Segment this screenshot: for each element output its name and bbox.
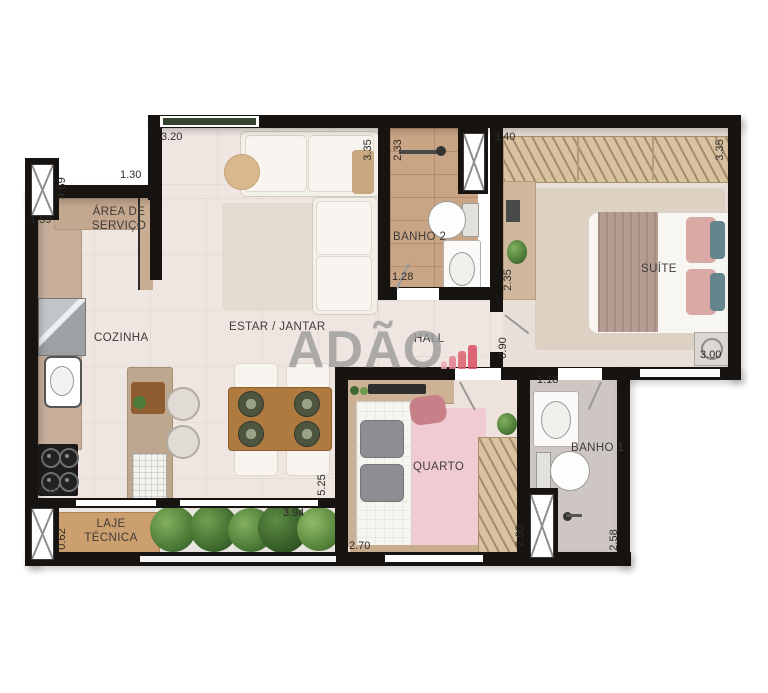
logo-bar bbox=[441, 361, 447, 369]
basin-banho1 bbox=[541, 401, 571, 439]
quarto-pillow bbox=[360, 464, 404, 502]
place-setting bbox=[238, 391, 264, 417]
dim-suite-bottom: 3.00 bbox=[700, 349, 721, 361]
dim-banho1-right-v: 2.58 bbox=[607, 520, 621, 560]
dim-suite-left-v: 2.35 bbox=[501, 260, 515, 300]
suite-window bbox=[640, 369, 720, 377]
estar-rug bbox=[222, 203, 314, 310]
room-label-estar-jantar: ESTAR / JANTAR bbox=[229, 320, 326, 334]
shower-head-banho2 bbox=[436, 146, 446, 156]
island-plant bbox=[133, 396, 146, 409]
room-label-quarto: QUARTO bbox=[413, 460, 464, 474]
toilet-banho1 bbox=[550, 451, 590, 491]
logo-bar bbox=[468, 345, 477, 369]
quarto-pillow bbox=[360, 420, 404, 458]
burner bbox=[59, 448, 79, 468]
duct-shaft-icon bbox=[31, 508, 54, 560]
dim-cozinha-bottom: 4.19 bbox=[38, 485, 59, 497]
quarto-rug bbox=[400, 408, 486, 548]
dim-estar-right-v: 3.35 bbox=[361, 130, 375, 170]
room-label-banho1: BANHO 1 bbox=[571, 441, 624, 455]
logo-bar bbox=[458, 351, 466, 369]
dim-suite-top: 3.40 bbox=[494, 131, 515, 143]
logo-bar bbox=[449, 356, 456, 369]
dim-quarto-bottom: 2.70 bbox=[349, 540, 370, 552]
quarto-plant bbox=[497, 413, 517, 435]
room-label-cozinha: COZINHA bbox=[94, 331, 149, 345]
side-table bbox=[224, 154, 260, 190]
dim-suite-right-v: 3.35 bbox=[713, 130, 727, 170]
burner bbox=[41, 448, 61, 468]
place-setting bbox=[294, 421, 320, 447]
toilet-tank-banho1 bbox=[536, 452, 551, 492]
room-label-area-servico: ÁREA DE SERVIÇO bbox=[86, 205, 152, 234]
suite-tv bbox=[506, 200, 520, 222]
dim-hall-v: 0.90 bbox=[496, 328, 510, 368]
sofa-cushion bbox=[316, 201, 372, 255]
dim-jantar-right-v: 5.25 bbox=[315, 465, 329, 505]
closet-divider bbox=[652, 137, 654, 180]
suite-pillow-teal bbox=[710, 221, 725, 259]
room-label-suite: SUÍTE bbox=[641, 262, 677, 276]
shower-arm-banho1 bbox=[566, 514, 582, 517]
place-setting bbox=[294, 391, 320, 417]
bar-chart-logo-icon bbox=[441, 344, 477, 369]
wall-right bbox=[728, 115, 741, 380]
window-planter-top bbox=[163, 118, 256, 125]
floor-plan: ÁREA DE SERVIÇO COZINHA ESTAR / JANTAR H… bbox=[0, 0, 768, 693]
bar-stool bbox=[166, 425, 200, 459]
quarto-window bbox=[385, 555, 483, 562]
dim-banho2-left-v: 2.33 bbox=[391, 130, 405, 170]
dim-servico-left: 1.59 bbox=[30, 214, 51, 226]
wall-banho2-left bbox=[378, 128, 390, 300]
room-label-banho2: BANHO 2 bbox=[393, 230, 446, 244]
quarto-desk-plant bbox=[360, 387, 368, 395]
bar-stool bbox=[166, 387, 200, 421]
dim-varanda-top: 3.94 bbox=[283, 507, 304, 519]
closet-divider bbox=[577, 137, 579, 180]
suite-closet bbox=[503, 136, 730, 183]
kitchen-sink-basin bbox=[50, 366, 74, 396]
room-label-laje-tecnica: LAJE TÉCNICA bbox=[72, 517, 150, 546]
basin-banho2 bbox=[449, 252, 475, 286]
island-sink bbox=[132, 453, 167, 501]
place-setting bbox=[238, 421, 264, 447]
dim-quarto-right-v: 2.60 bbox=[513, 516, 527, 556]
dim-estar-top: 3.20 bbox=[161, 131, 182, 143]
dim-servico-top: 1.30 bbox=[120, 169, 141, 181]
balcony-glass-door bbox=[180, 500, 318, 506]
dim-laje-left-v: 0.62 bbox=[55, 519, 69, 559]
balcony-glass-door bbox=[76, 500, 156, 506]
dim-servico-left-v: 4.69 bbox=[55, 168, 69, 208]
banho2-door-opening bbox=[397, 288, 439, 300]
washing-machine bbox=[38, 298, 86, 356]
duct-shaft-icon bbox=[31, 164, 54, 216]
duct-shaft-icon bbox=[463, 133, 485, 191]
dim-banho2-bottom: 1.28 bbox=[392, 271, 413, 283]
wall-quarto-left bbox=[335, 367, 348, 553]
quarto-desk-plant bbox=[350, 386, 359, 395]
suite-pillow-teal bbox=[710, 273, 725, 311]
quarto-door-opening bbox=[455, 368, 501, 380]
duct-shaft-icon bbox=[530, 494, 554, 558]
dim-banho1-top: 1.18 bbox=[537, 374, 558, 386]
balcony-railing bbox=[140, 556, 336, 562]
burner bbox=[59, 472, 79, 492]
wall-service-divider bbox=[150, 128, 162, 280]
quarto-laptop bbox=[368, 384, 426, 394]
banho1-door-opening bbox=[558, 368, 602, 380]
room-label-hall: HALL bbox=[414, 332, 444, 346]
sofa-cushion bbox=[316, 256, 372, 311]
